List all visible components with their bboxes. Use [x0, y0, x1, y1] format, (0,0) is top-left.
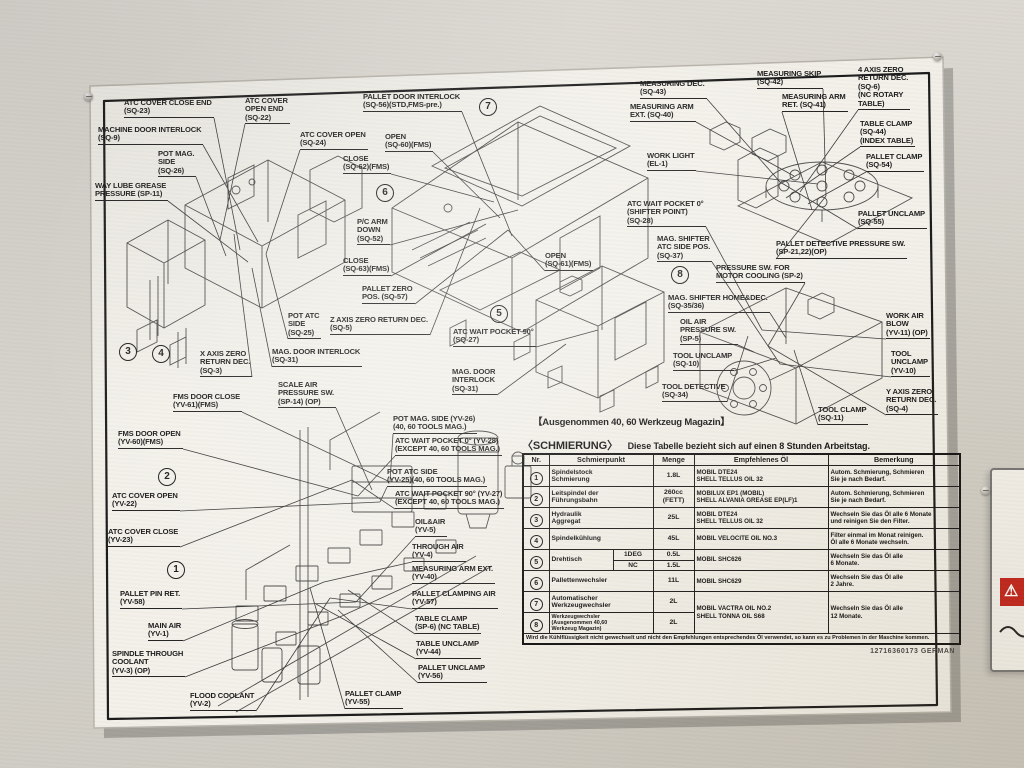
- callout-atc-cover-open: ATC COVER OPEN(YV-22): [112, 492, 180, 511]
- table-cell: Leitspindel derFührungsbahn: [549, 487, 653, 508]
- table-cell: Wechseln Sie das Öl alle6 Monate.: [828, 550, 960, 571]
- callout-atc-cover: ATC COVEROPEN END(SQ-22): [245, 97, 290, 124]
- callout-close: CLOSE(SQ-62)(FMS): [343, 155, 391, 174]
- callout-work-air: WORK AIRBLOW(YV-11) (OP): [886, 312, 930, 339]
- table-cell: 1.8L: [653, 466, 694, 487]
- table-cell: 8: [523, 613, 549, 634]
- circled-number-6: 6: [376, 184, 394, 202]
- photo-stage: ATC COVER CLOSE END(SQ-23)MACHINE DOOR I…: [0, 0, 1024, 768]
- callout-tool-clamp: TOOL CLAMP(SQ-11): [818, 406, 868, 425]
- table-cell: 2L: [653, 613, 694, 634]
- callout-pot-mag: POT MAG.SIDE(SQ-26): [158, 150, 196, 177]
- callout-atc-wait-pocket-90-yv-27: ATC WAIT POCKET 90° (YV-27)(EXCEPT 40, 6…: [395, 490, 504, 509]
- callout-tool-unclamp: TOOL UNCLAMP(SQ-10): [673, 352, 734, 371]
- table-cell: Filter einmal im Monat reinigen.Öl alle …: [828, 529, 960, 550]
- callout-open: OPEN(SQ-61)(FMS): [545, 252, 593, 271]
- callout-pallet-unclamp: PALLET UNCLAMP(SQ-55): [858, 210, 927, 229]
- callout-pot-mag-side-yv-26: POT MAG. SIDE (YV-26)(40, 60 TOOLS MAG.): [393, 415, 477, 434]
- circled-number-7: 7: [479, 98, 497, 116]
- callout-oil-air: OIL&AIR(YV-5): [415, 518, 447, 537]
- table-cell: 0.5L: [653, 550, 694, 561]
- callout-table-clamp: TABLE CLAMP(SP-6) (NC TABLE): [415, 615, 481, 634]
- table-cell: 3: [523, 508, 549, 529]
- table-cell: 45L: [653, 529, 694, 550]
- circled-number-3: 3: [119, 343, 137, 361]
- callout-pot-atc: POT ATCSIDE(SQ-25): [288, 312, 321, 339]
- callout-open: OPEN(SQ-60)(FMS): [385, 133, 433, 152]
- adjacent-label-screw: [981, 486, 990, 495]
- circled-number-4: 4: [152, 345, 170, 363]
- table-cell: AutomatischerWerkzeugwechsler: [549, 592, 653, 613]
- callout-oil-air: OIL AIRPRESSURE SW.(SP-5): [680, 318, 738, 345]
- callout-mag-door: MAG. DOORINTERLOCK(SQ-31): [452, 368, 497, 395]
- table-footnote: Wird die Kühlflüssigkeit nicht gewechsel…: [523, 634, 960, 645]
- callout-main-air: MAIN AIR(YV-1): [148, 622, 183, 641]
- callout-measuring-arm: MEASURING ARMRET. (SQ-41): [782, 93, 848, 112]
- callout-close: CLOSE(SQ-63)(FMS): [343, 257, 391, 276]
- table-title-text: Diese Tabelle bezieht sich auf einen 8 S…: [628, 441, 870, 451]
- table-header-nr-: Nr.: [523, 454, 549, 466]
- table-cell: Pallettenwechsler: [549, 571, 653, 592]
- table-cell: Wechseln Sie das Öl alle12 Monate.: [828, 592, 960, 634]
- warning-squiggle: [998, 620, 1024, 640]
- table-cell: MOBIL SHC626: [694, 550, 828, 571]
- table-cell: MOBIL SHC629: [694, 571, 828, 592]
- callout-pressure-sw-for: PRESSURE SW. FORMOTOR COOLING (SP-2): [716, 264, 805, 283]
- table-header-menge: Menge: [653, 454, 694, 466]
- callout-way-lube-grease: WAY LUBE GREASEPRESSURE (SP-11): [95, 182, 168, 201]
- table-header-schmierpunkt: Schmierpunkt: [549, 454, 653, 466]
- adjacent-warning-label: ⚠: [990, 468, 1024, 672]
- table-cell: 2: [523, 487, 549, 508]
- part-number: 12716360173 GERMAN: [870, 647, 955, 656]
- table-cell: Wechseln Sie das Öl alle2 Jahre.: [828, 571, 960, 592]
- table-cell: MOBIL VELOCITE OIL NO.3: [694, 529, 828, 550]
- table-cell: 1: [523, 466, 549, 487]
- callout-pallet-pin-ret: PALLET PIN RET.(YV-58): [120, 590, 182, 609]
- callout-y-axis-zero: Y AXIS ZERORETURN DEC.(SQ-4): [886, 388, 938, 415]
- table-cell: Werkzeugwechsler(Ausgenommen 40,60Werkze…: [549, 613, 653, 634]
- table-cell: 6: [523, 571, 549, 592]
- callout-pot-atc-side: POT ATC SIDE(YV-25)(40, 60 TOOLS MAG.): [387, 468, 487, 487]
- table-cell: 1.5L: [653, 560, 694, 571]
- callout-fms-door-open: FMS DOOR OPEN(YV-60)(FMS): [118, 430, 183, 449]
- callout-atc-cover-close: ATC COVER CLOSE(YV-23): [108, 528, 180, 547]
- callout-atc-wait-pocket-0: ATC WAIT POCKET 0°(SHIFTER POINT)(SQ-28): [627, 200, 706, 227]
- table-cell: MOBILUX EP1 (MOBIL)SHELL ALVANIA GREASE …: [694, 487, 828, 508]
- table-header-bemerkung: Bemerkung: [828, 454, 960, 466]
- table-cell: NC: [613, 560, 653, 571]
- table-cell: MOBIL VACTRA OIL NO.2SHELL TONNA OIL S68: [694, 592, 828, 634]
- callout-through-air: THROUGH AIR(YV-4): [412, 543, 466, 562]
- callout-pallet-unclamp: PALLET UNCLAMP(YV-56): [418, 664, 487, 683]
- table-cell: Drehtisch: [549, 550, 613, 571]
- callout-machine-door-interlock: MACHINE DOOR INTERLOCK(SQ-9): [98, 126, 203, 145]
- schmierung-table-title: 〈SCHMIERUNG〉 Diese Tabelle bezieht sich …: [522, 440, 959, 453]
- callout-measuring-arm-ext: MEASURING ARM EXT.(YV-40): [412, 565, 495, 584]
- callout-scale-air: SCALE AIRPRESSURE SW.(SP-14) (OP): [278, 381, 336, 408]
- callout-pallet-detective-pressure-sw: PALLET DETECTIVE PRESSURE SW.(SP-21,22)(…: [776, 240, 907, 259]
- callout-z-axis-zero-return-dec: Z AXIS ZERO RETURN DEC.(SQ-5): [330, 316, 430, 335]
- table-title-bracket: 〈SCHMIERUNG〉: [522, 440, 618, 452]
- callout-mag-shifter-home-dec: MAG. SHIFTER HOME&DEC.(SQ-35/36): [668, 294, 770, 313]
- callout-pallet-clamp: PALLET CLAMP(SQ-54): [866, 153, 924, 172]
- callout-work-light: WORK LIGHT(EL-1): [647, 152, 696, 171]
- table-cell: MOBIL DTE24SHELL TELLUS OIL 32: [694, 466, 828, 487]
- table-cell: SpindelstockSchmierung: [549, 466, 653, 487]
- callout-flood-coolant: FLOOD COOLANT(YV-2): [190, 692, 256, 711]
- callout-tool-detective: TOOL DETECTIVE(SQ-34): [662, 383, 727, 402]
- callout-atc-wait-pocket-0-yv-28: ATC WAIT POCKET 0° (YV-28)(EXCEPT 40, 60…: [395, 437, 502, 456]
- table-cell: Autom. Schmierung, SchmierenSie je nach …: [828, 466, 960, 487]
- table-cell: HydraulikAggregat: [549, 508, 653, 529]
- callout-atc-cover-close-end: ATC COVER CLOSE END(SQ-23): [124, 99, 214, 118]
- table-header-empfehlenes-öl: Empfehlenes Öl: [694, 454, 828, 466]
- table-cell: 25L: [653, 508, 694, 529]
- magazine-exception-caption: 【Ausgenommen 40, 60 Werkzeug Magazin】: [533, 417, 730, 428]
- callout-pallet-zero: PALLET ZEROPOS. (SQ-57): [362, 285, 415, 304]
- callout-table-unclamp: TABLE UNCLAMP(YV-44): [416, 640, 481, 659]
- schmierung-table: Nr.SchmierpunktMengeEmpfehlenes ÖlBemerk…: [522, 453, 961, 645]
- table-cell: 4: [523, 529, 549, 550]
- table-cell: Wechseln Sie das Öl alle 6 Monateund rei…: [828, 508, 960, 529]
- table-cell: 1DEG: [613, 550, 653, 561]
- callout-mag-door-interlock: MAG. DOOR INTERLOCK(SQ-31): [272, 348, 362, 367]
- callout-tool: TOOLUNCLAMP(YV-10): [891, 350, 930, 377]
- warning-red-band: ⚠: [1000, 578, 1024, 606]
- callout-pallet-clamp: PALLET CLAMP(YV-55): [345, 690, 403, 709]
- callout-x-axis-zero: X AXIS ZERORETURN DEC.(SQ-3): [200, 350, 252, 377]
- callout-mag-shifter: MAG. SHIFTERATC SIDE POS.(SQ-37): [657, 235, 712, 262]
- table-cell: Autom. Schmierung, SchmierenSie je nach …: [828, 487, 960, 508]
- callout-table-clamp: TABLE CLAMP(SQ-44)(INDEX TABLE): [860, 120, 915, 147]
- schmierung-table-area: 〈SCHMIERUNG〉 Diese Tabelle bezieht sich …: [522, 440, 959, 645]
- warning-icon: ⚠: [1004, 583, 1018, 600]
- callout-measuring-arm: MEASURING ARMEXT. (SQ-40): [630, 103, 696, 122]
- callout-pallet-door-interlock: PALLET DOOR INTERLOCK(SQ-56)(STD,FMS-pre…: [363, 93, 462, 112]
- table-cell: Spindelkühlung: [549, 529, 653, 550]
- callout-measuring-dec: MEASURING DEC.(SQ-43): [640, 80, 707, 99]
- callout-spindle-through: SPINDLE THROUGHCOOLANT(YV-3) (OP): [112, 650, 185, 677]
- callout-pallet-clamping-air: PALLET CLAMPING AIR(YV-57): [412, 590, 498, 609]
- callout-fms-door-close: FMS DOOR CLOSE(YV-61)(FMS): [173, 393, 242, 412]
- callout-measuring-skip: MEASURING SKIP(SQ-42): [757, 70, 823, 89]
- plate-screw-top-right: [933, 52, 942, 61]
- table-cell: 5: [523, 550, 549, 571]
- callout-4-axis-zero: 4 AXIS ZERORETURN DEC.(SQ-6)(NC ROTARYTA…: [858, 66, 910, 110]
- table-cell: 7: [523, 592, 549, 613]
- table-cell: 2L: [653, 592, 694, 613]
- callout-atc-cover-open: ATC COVER OPEN(SQ-24): [300, 131, 368, 150]
- circled-number-1: 1: [167, 561, 185, 579]
- callout-p-c-arm: P/C ARMDOWN(SQ-52): [357, 218, 390, 245]
- circled-number-5: 5: [490, 305, 508, 323]
- callout-atc-wait-pocket-90: ATC WAIT POCKET 90°(SQ-27): [453, 328, 536, 347]
- circled-number-2: 2: [158, 468, 176, 486]
- table-cell: MOBIL DTE24SHELL TELLUS OIL 32: [694, 508, 828, 529]
- plate-screw-top-left: [84, 92, 93, 101]
- table-cell: 260cc(FETT): [653, 487, 694, 508]
- table-cell: 11L: [653, 571, 694, 592]
- circled-number-8: 8: [671, 266, 689, 284]
